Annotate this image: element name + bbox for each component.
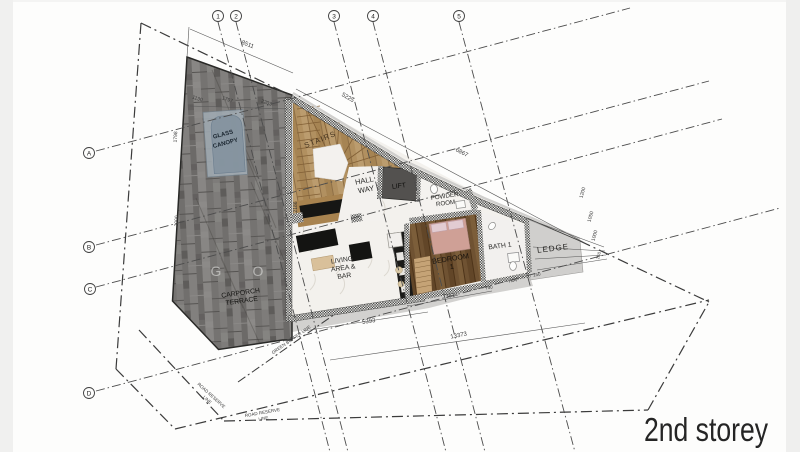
svg-text:1: 1	[216, 14, 220, 21]
svg-text:C: C	[88, 287, 93, 294]
svg-text:1798: 1798	[173, 131, 180, 143]
svg-text:B: B	[87, 245, 91, 252]
svg-text:2000: 2000	[174, 215, 180, 227]
svg-text:D: D	[87, 391, 92, 398]
svg-text:2nd storey: 2nd storey	[644, 411, 768, 448]
svg-text:O: O	[253, 263, 264, 279]
svg-text:2186: 2186	[293, 201, 299, 212]
svg-text:4: 4	[371, 14, 375, 21]
svg-text:G: G	[211, 263, 222, 279]
svg-text:A: A	[87, 151, 92, 158]
svg-text:3: 3	[332, 14, 336, 21]
svg-text:5: 5	[457, 14, 461, 21]
svg-text:2: 2	[234, 14, 238, 21]
